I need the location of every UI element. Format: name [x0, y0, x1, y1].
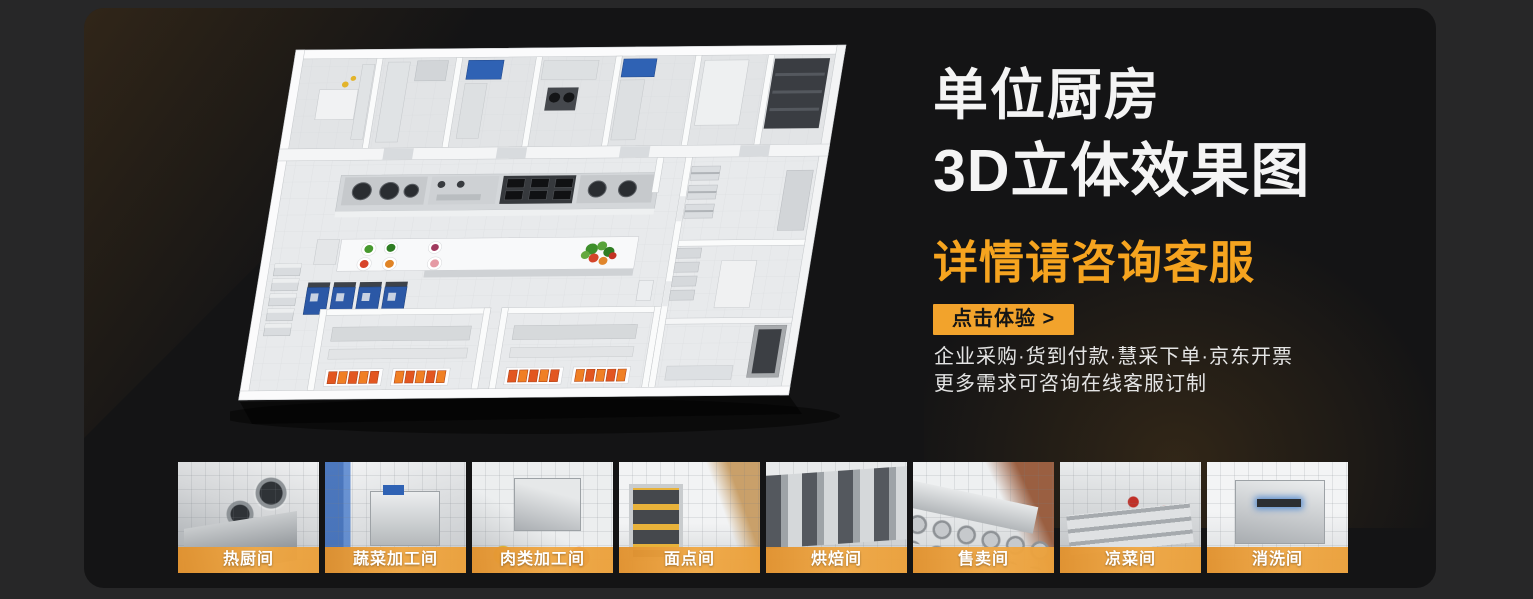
kitchen-3d-floorplan-image	[230, 18, 890, 442]
thumbnail-vegetable-processing[interactable]: 蔬菜加工间	[325, 462, 466, 573]
cta-button[interactable]: 点击体验 >	[933, 304, 1074, 335]
thumbnail-cold-dish-room[interactable]: 凉菜间	[1060, 462, 1201, 573]
thumbnail-baking-room[interactable]: 烘焙间	[766, 462, 907, 573]
thumbnail-sales-room[interactable]: 售卖间	[913, 462, 1054, 573]
banner-subtitle: 详情请咨询客服	[933, 240, 1255, 285]
thumbnail-washing-room[interactable]: 消洗间	[1207, 462, 1348, 573]
banner-desc-line2: 更多需求可咨询在线客服订制	[934, 374, 1207, 394]
room-thumbnails: 热厨间 蔬菜加工间 肉类加工间 面点间 烘焙间 售卖间 凉菜间 消洗间	[178, 462, 1348, 573]
thumbnail-label: 热厨间	[178, 547, 319, 573]
thumbnail-hot-kitchen[interactable]: 热厨间	[178, 462, 319, 573]
thumbnail-label: 消洗间	[1207, 547, 1348, 573]
banner-desc-line1: 企业采购·货到付款·慧采下单·京东开票	[934, 347, 1293, 367]
thumbnail-label: 烘焙间	[766, 547, 907, 573]
thumbnail-pastry-room[interactable]: 面点间	[619, 462, 760, 573]
banner-title-line2: 3D立体效果图	[933, 142, 1310, 201]
thumbnail-label: 肉类加工间	[472, 547, 613, 573]
page-background: { "banner": { "title_line1": "单位厨房", "ti…	[0, 0, 1533, 599]
banner-title-line1: 单位厨房	[933, 68, 1161, 123]
thumbnail-label: 面点间	[619, 547, 760, 573]
thumbnail-meat-processing[interactable]: 肉类加工间	[472, 462, 613, 573]
thumbnail-label: 凉菜间	[1060, 547, 1201, 573]
thumbnail-label: 售卖间	[913, 547, 1054, 573]
thumbnail-label: 蔬菜加工间	[325, 547, 466, 573]
banner-panel: 单位厨房 3D立体效果图 详情请咨询客服 点击体验 > 企业采购·货到付款·慧采…	[84, 8, 1436, 588]
